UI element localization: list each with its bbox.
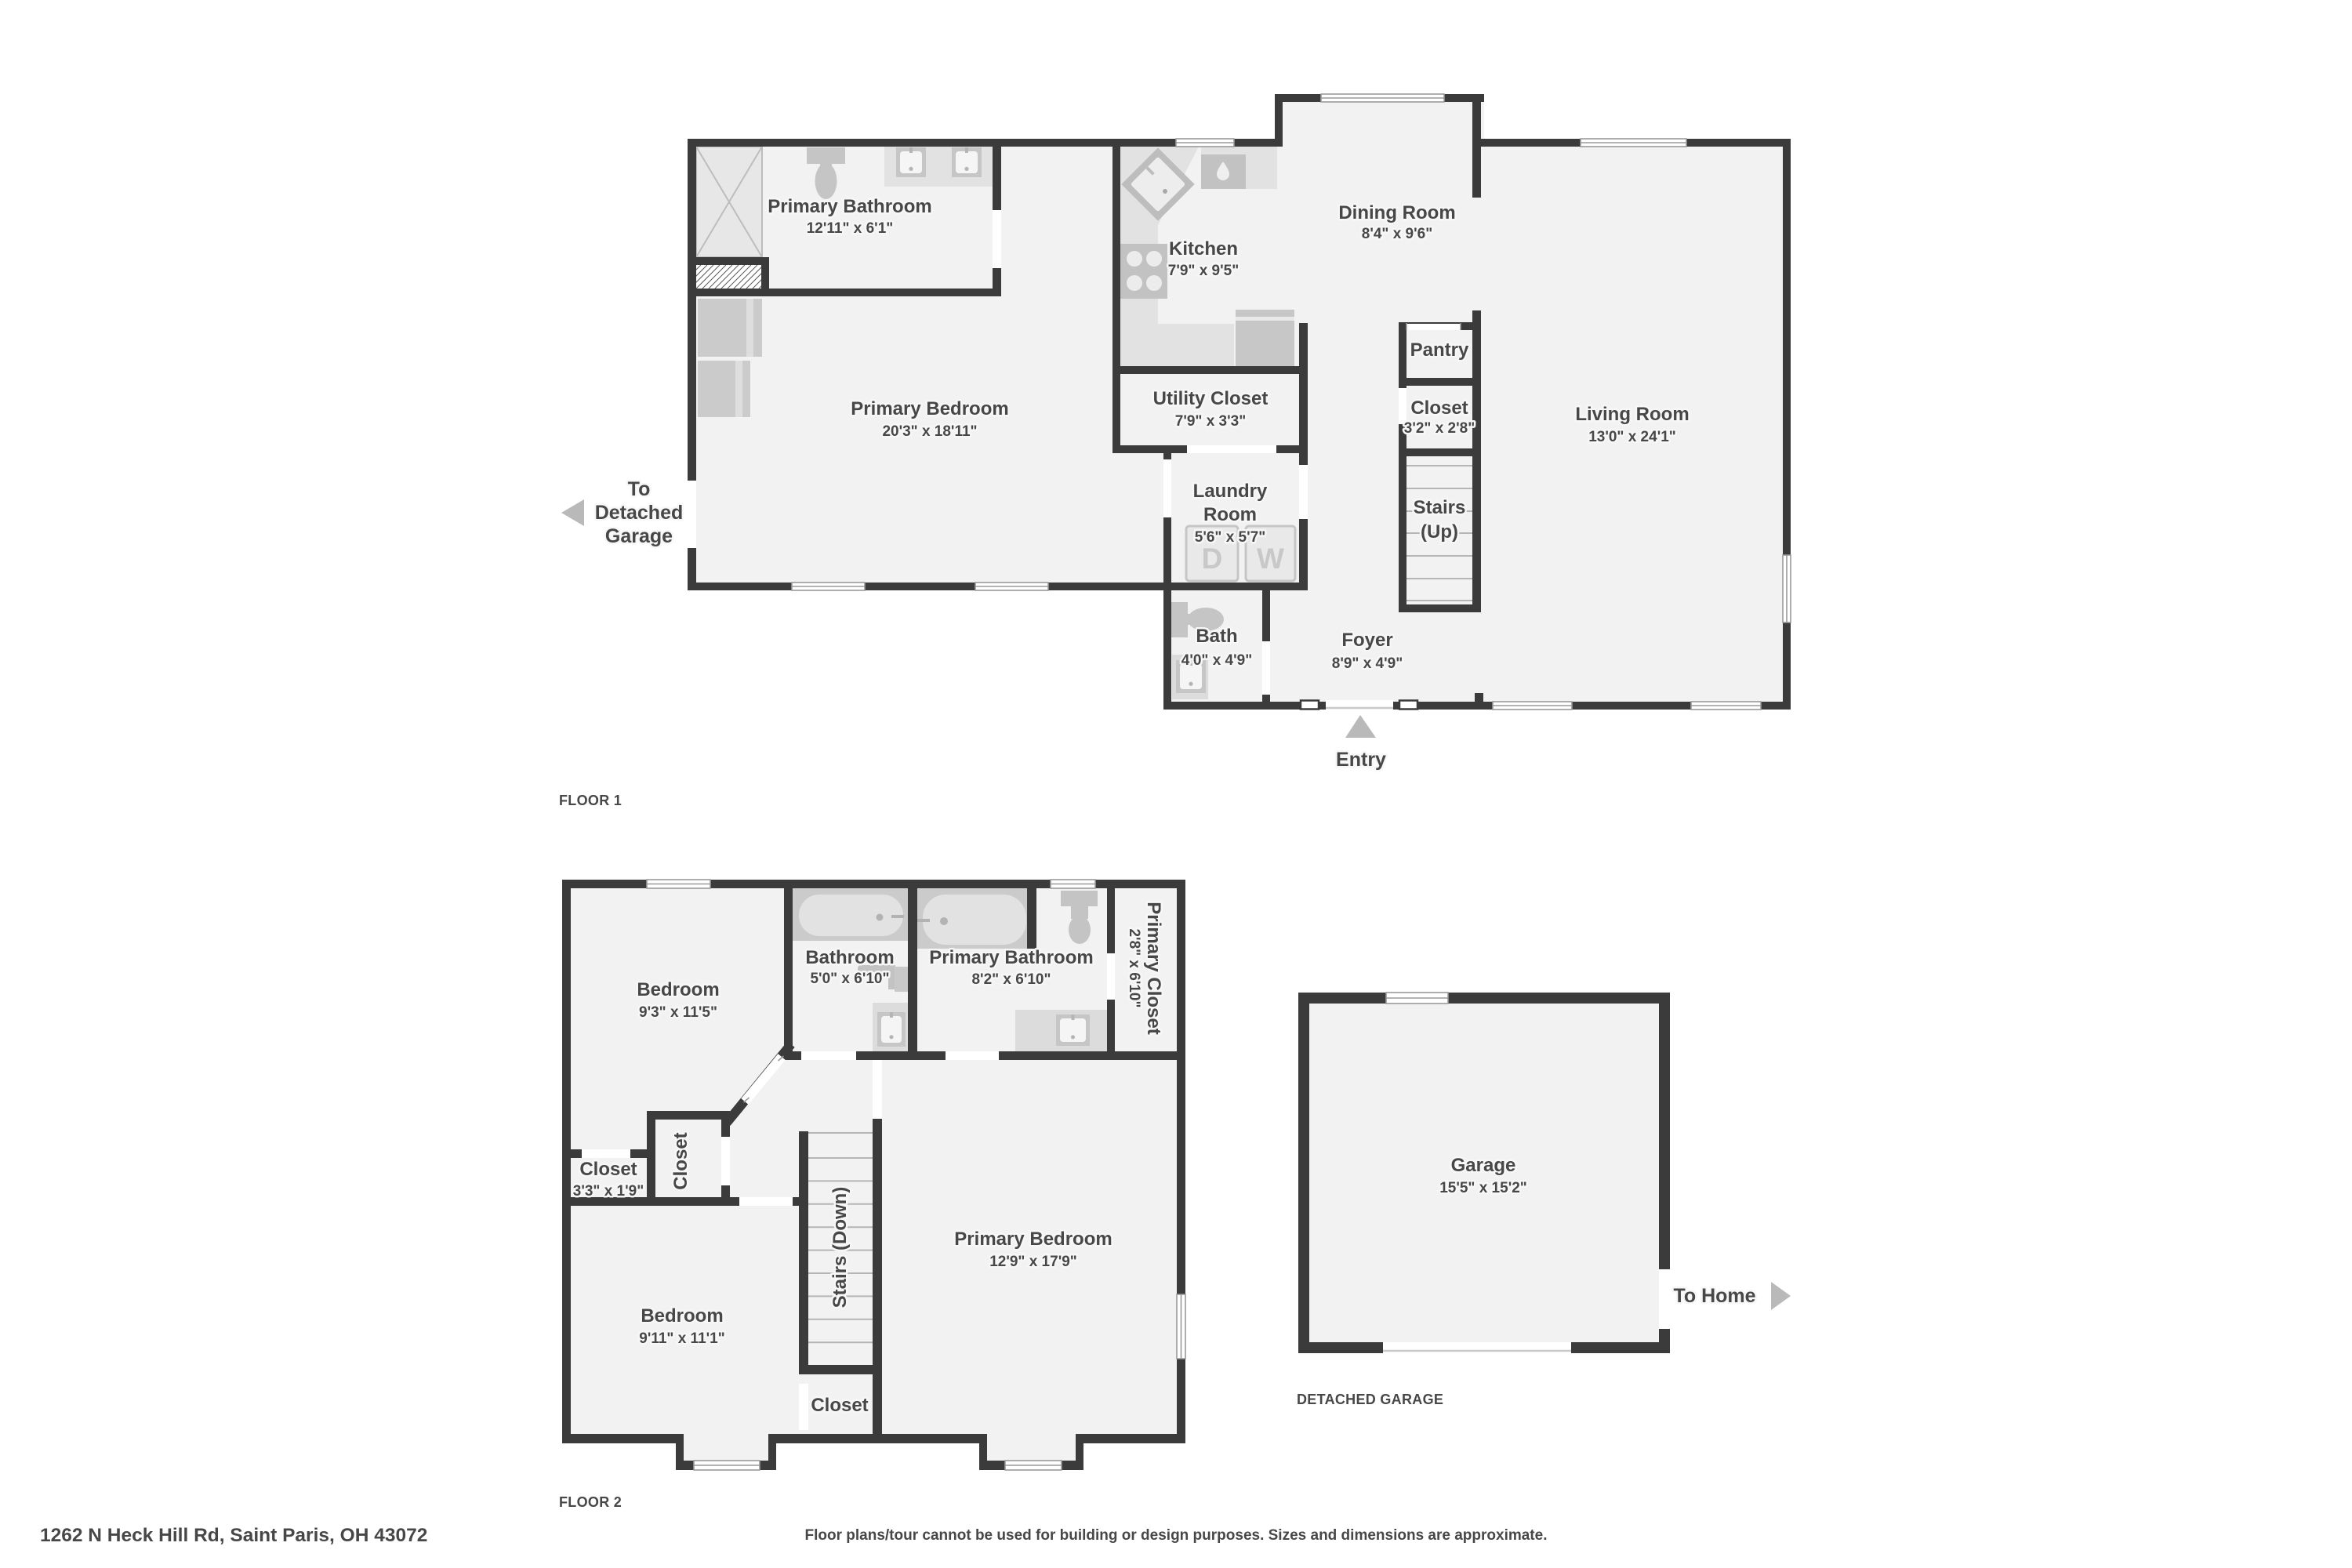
svg-text:Bath: Bath bbox=[1196, 626, 1237, 647]
svg-text:Dining Room: Dining Room bbox=[1338, 202, 1455, 223]
svg-text:Bedroom: Bedroom bbox=[641, 1305, 723, 1327]
svg-text:Kitchen: Kitchen bbox=[1169, 238, 1238, 260]
svg-text:9'3" x 11'5": 9'3" x 11'5" bbox=[639, 1004, 717, 1021]
svg-text:Floor plans/tour cannot be use: Floor plans/tour cannot be used for buil… bbox=[805, 1527, 1548, 1544]
svg-text:8'4" x 9'6": 8'4" x 9'6" bbox=[1362, 226, 1432, 242]
svg-text:Living Room: Living Room bbox=[1575, 404, 1689, 425]
svg-text:8'2" x 6'10": 8'2" x 6'10" bbox=[971, 971, 1051, 988]
svg-text:4'0" x 4'9": 4'0" x 4'9" bbox=[1181, 652, 1252, 669]
svg-text:Closet: Closet bbox=[1410, 397, 1468, 419]
svg-text:Detached: Detached bbox=[595, 502, 684, 524]
svg-text:7'9" x 3'3": 7'9" x 3'3" bbox=[1175, 413, 1246, 430]
svg-text:Primary Closet: Primary Closet bbox=[1143, 902, 1164, 1034]
svg-text:Utility Closet: Utility Closet bbox=[1153, 388, 1269, 409]
svg-text:2'8" x 6'10": 2'8" x 6'10" bbox=[1126, 928, 1142, 1007]
svg-text:13'0" x 24'1": 13'0" x 24'1" bbox=[1588, 429, 1676, 445]
svg-text:20'3" x 18'11": 20'3" x 18'11" bbox=[882, 423, 977, 440]
svg-text:Laundry: Laundry bbox=[1193, 481, 1268, 502]
svg-text:Pantry: Pantry bbox=[1410, 339, 1469, 361]
svg-text:5'0" x 6'10": 5'0" x 6'10" bbox=[810, 971, 889, 987]
svg-text:To: To bbox=[628, 478, 651, 500]
svg-text:Closet: Closet bbox=[670, 1132, 691, 1189]
svg-text:8'9" x 4'9": 8'9" x 4'9" bbox=[1332, 655, 1403, 672]
svg-text:Primary Bathroom: Primary Bathroom bbox=[929, 947, 1093, 968]
svg-text:Garage: Garage bbox=[605, 525, 673, 547]
svg-text:To Home: To Home bbox=[1673, 1285, 1755, 1307]
svg-text:Primary Bedroom: Primary Bedroom bbox=[851, 398, 1008, 419]
svg-text:7'9" x 9'5": 7'9" x 9'5" bbox=[1168, 263, 1239, 279]
svg-text:FLOOR 2: FLOOR 2 bbox=[559, 1494, 622, 1510]
svg-text:Garage: Garage bbox=[1451, 1155, 1516, 1176]
svg-text:DETACHED GARAGE: DETACHED GARAGE bbox=[1297, 1392, 1443, 1407]
svg-text:3'3" x 1'9": 3'3" x 1'9" bbox=[573, 1183, 644, 1200]
svg-text:5'6" x 5'7": 5'6" x 5'7" bbox=[1195, 529, 1265, 546]
svg-text:12'11" x 6'1": 12'11" x 6'1" bbox=[807, 220, 894, 237]
svg-text:Entry: Entry bbox=[1336, 749, 1386, 771]
svg-text:Bathroom: Bathroom bbox=[805, 947, 894, 968]
svg-text:Bedroom: Bedroom bbox=[637, 979, 719, 1000]
svg-text:Stairs: Stairs bbox=[1414, 497, 1466, 518]
svg-text:3'2" x 2'8": 3'2" x 2'8" bbox=[1404, 420, 1475, 437]
svg-text:W: W bbox=[1257, 543, 1284, 575]
svg-text:1262 N Heck Hill Rd, Saint Par: 1262 N Heck Hill Rd, Saint Paris, OH 430… bbox=[40, 1525, 427, 1546]
svg-text:Room: Room bbox=[1203, 504, 1257, 525]
svg-text:Closet: Closet bbox=[579, 1159, 637, 1180]
svg-text:D: D bbox=[1202, 543, 1223, 575]
svg-text:FLOOR 1: FLOOR 1 bbox=[559, 793, 622, 808]
svg-text:9'11" x 11'1": 9'11" x 11'1" bbox=[639, 1330, 724, 1347]
svg-text:Foyer: Foyer bbox=[1341, 630, 1392, 651]
svg-text:Closet: Closet bbox=[811, 1395, 868, 1416]
svg-text:Primary Bedroom: Primary Bedroom bbox=[954, 1229, 1112, 1250]
svg-text:12'9" x 17'9": 12'9" x 17'9" bbox=[989, 1254, 1077, 1270]
svg-text:Stairs (Down): Stairs (Down) bbox=[829, 1187, 851, 1308]
svg-text:15'5" x 15'2": 15'5" x 15'2" bbox=[1439, 1180, 1527, 1196]
svg-text:Primary Bathroom: Primary Bathroom bbox=[768, 196, 931, 217]
svg-text:(Up): (Up) bbox=[1421, 521, 1458, 543]
